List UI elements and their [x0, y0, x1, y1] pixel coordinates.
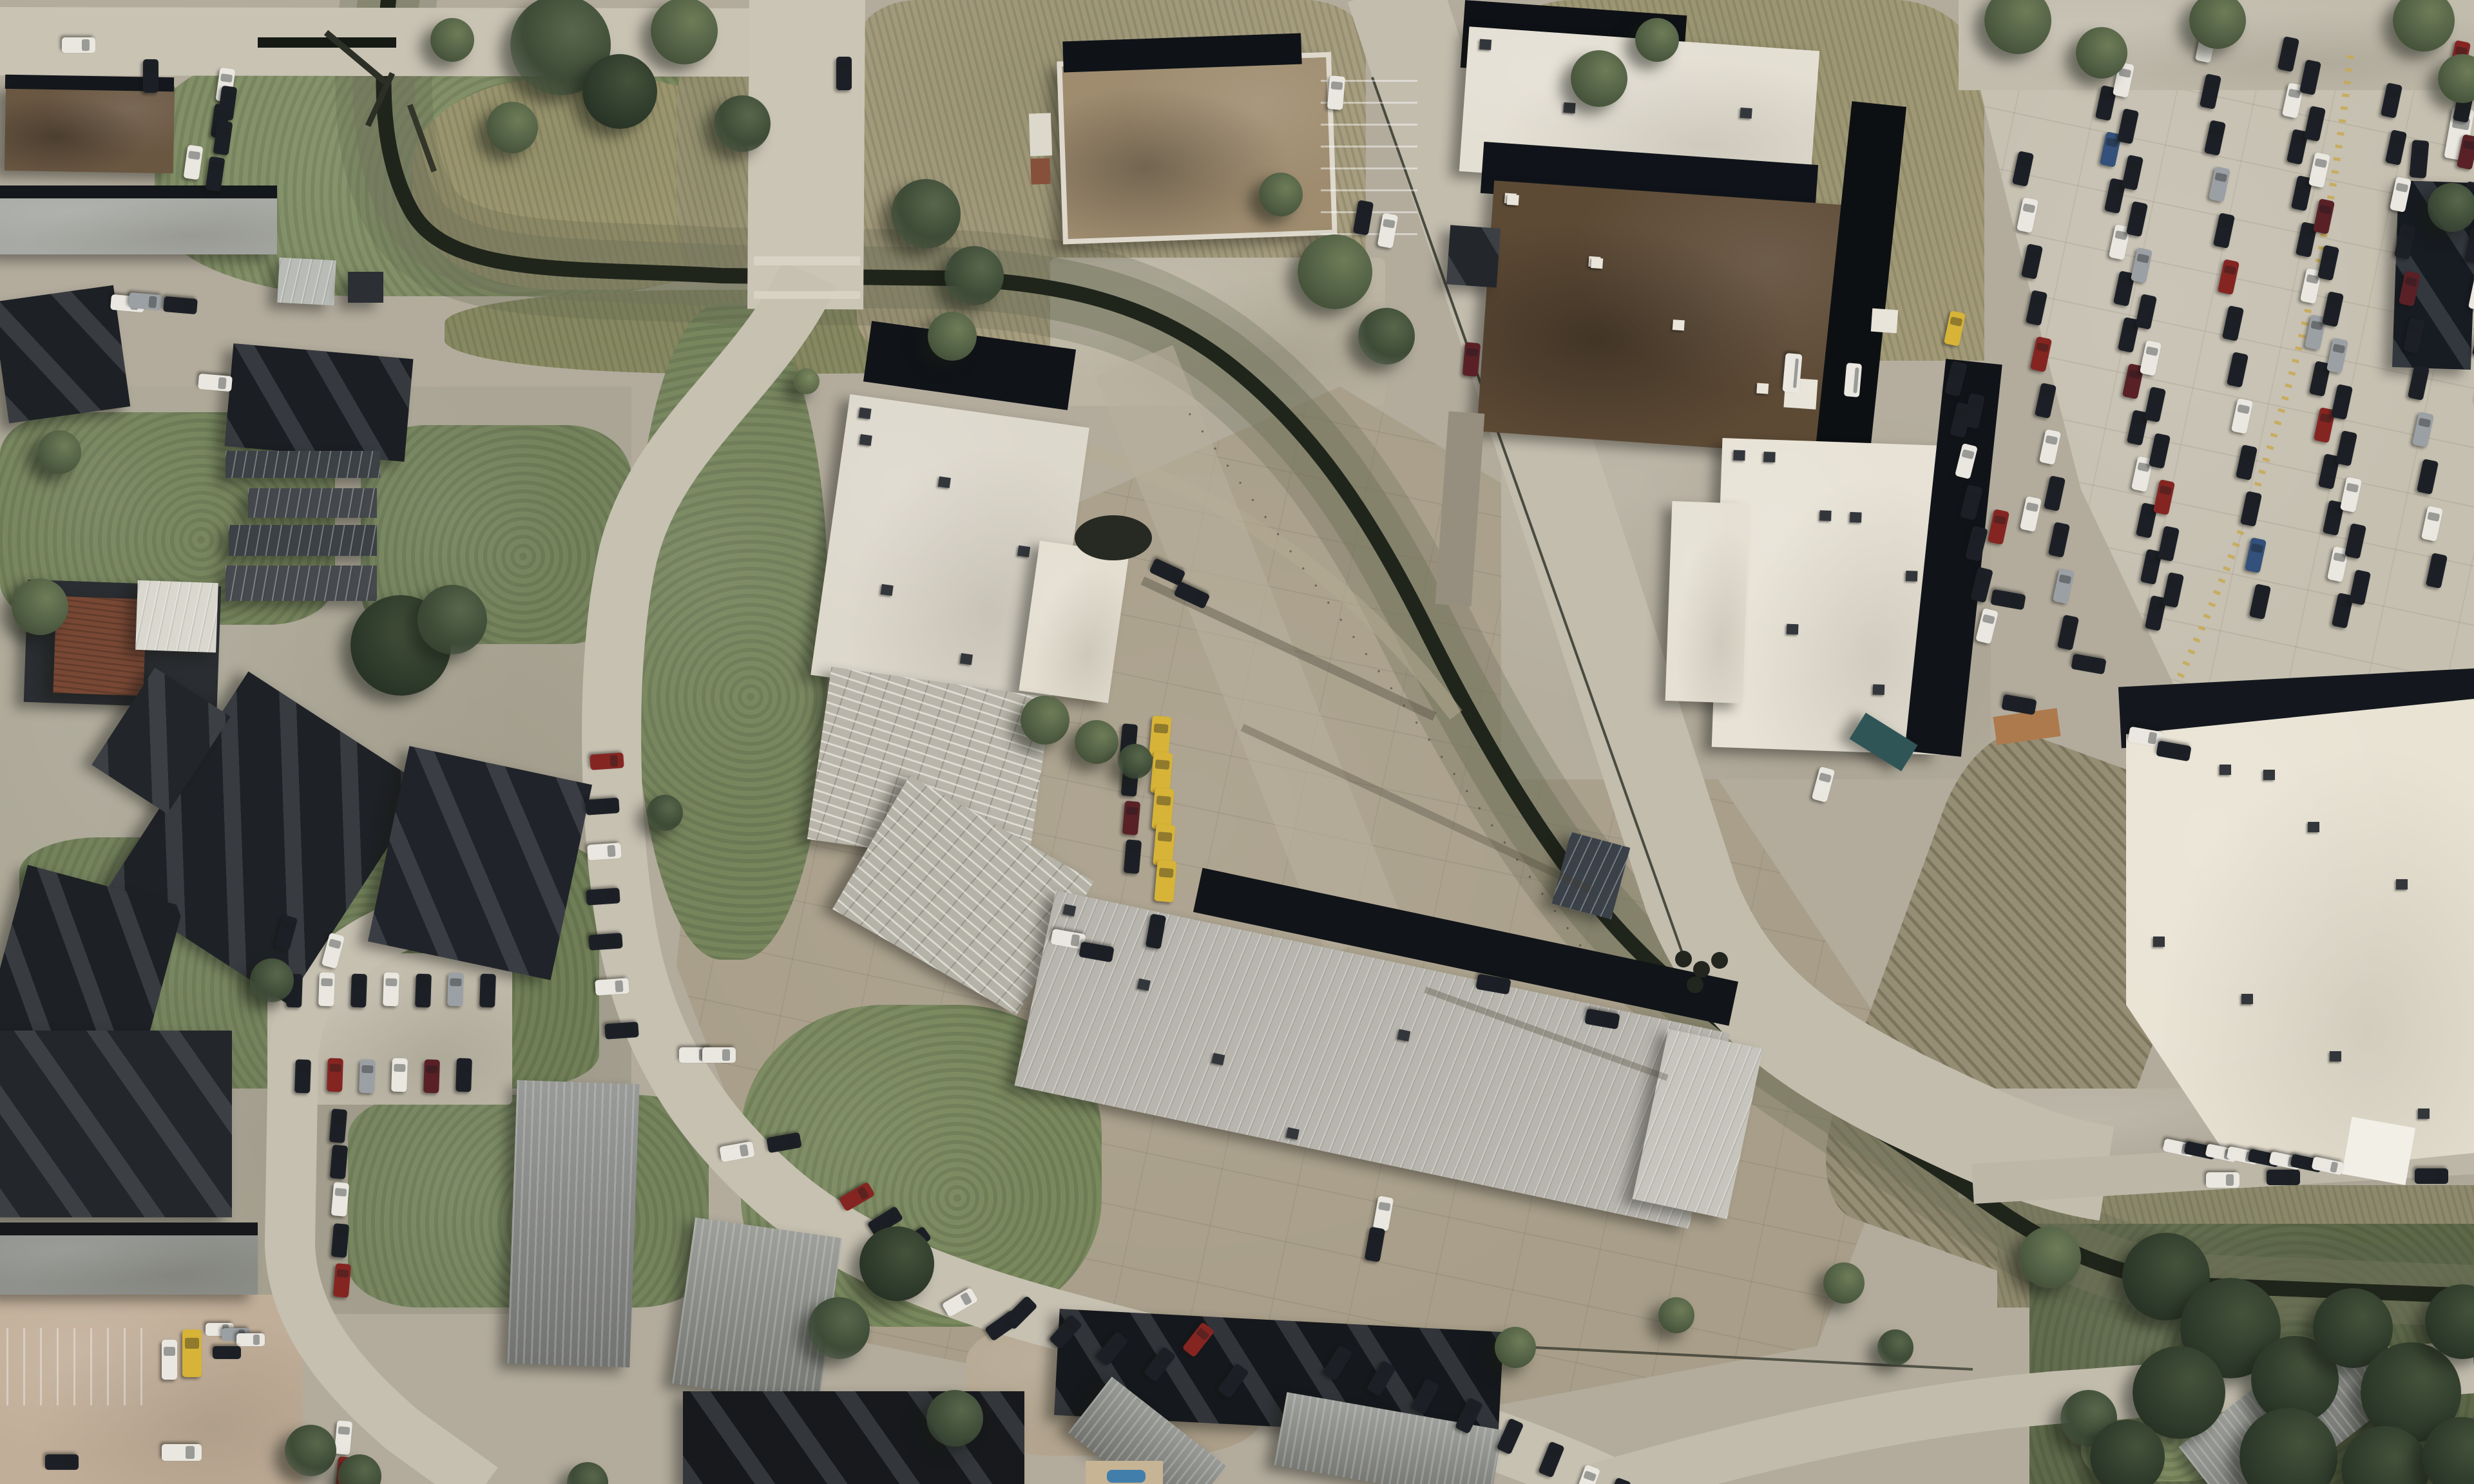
tree-canopy	[2239, 1408, 2337, 1484]
tree-canopy	[1358, 308, 1415, 365]
tree-canopy	[1658, 1297, 1694, 1333]
tree-canopy	[1495, 1327, 1536, 1368]
tree-canopy	[2019, 1226, 2081, 1288]
tree-canopy	[928, 312, 977, 361]
tree-canopy	[285, 1425, 336, 1476]
tree-canopy	[808, 1297, 870, 1359]
tree-canopy	[2076, 27, 2127, 79]
tree-canopy	[926, 1390, 983, 1447]
tree-canopy	[891, 179, 961, 249]
tree-canopy	[1571, 50, 1627, 107]
tree-canopy	[1075, 720, 1118, 764]
tree-canopy	[338, 1454, 381, 1484]
tree-canopy	[647, 795, 683, 831]
tree-canopy	[567, 1462, 608, 1484]
tree-canopy	[2438, 54, 2474, 103]
tree-canopy	[430, 18, 474, 62]
trees-layer	[0, 0, 2474, 1484]
satellite-aerial-view: Aerial satellite photograph of an urban …	[0, 0, 2474, 1484]
tree-canopy	[1259, 173, 1303, 216]
tree-canopy	[12, 578, 68, 635]
tree-canopy	[794, 368, 820, 394]
tree-canopy	[582, 54, 657, 129]
tree-canopy	[2189, 0, 2246, 49]
tree-canopy	[1984, 0, 2051, 54]
tree-canopy	[1298, 234, 1372, 309]
tree-canopy	[1823, 1262, 1865, 1304]
tree-canopy	[859, 1226, 934, 1301]
tree-canopy	[2428, 183, 2474, 232]
tree-canopy	[250, 958, 294, 1002]
tree-canopy	[1877, 1329, 1913, 1365]
tree-canopy	[417, 585, 487, 654]
tree-canopy	[1635, 18, 1679, 62]
tree-canopy	[945, 246, 1004, 305]
tree-canopy	[37, 430, 81, 474]
tree-canopy	[714, 95, 771, 152]
tree-canopy	[1021, 696, 1069, 745]
tree-canopy	[1118, 744, 1153, 779]
tree-canopy	[651, 0, 718, 64]
tree-canopy	[2393, 0, 2455, 52]
tree-canopy	[486, 102, 538, 153]
